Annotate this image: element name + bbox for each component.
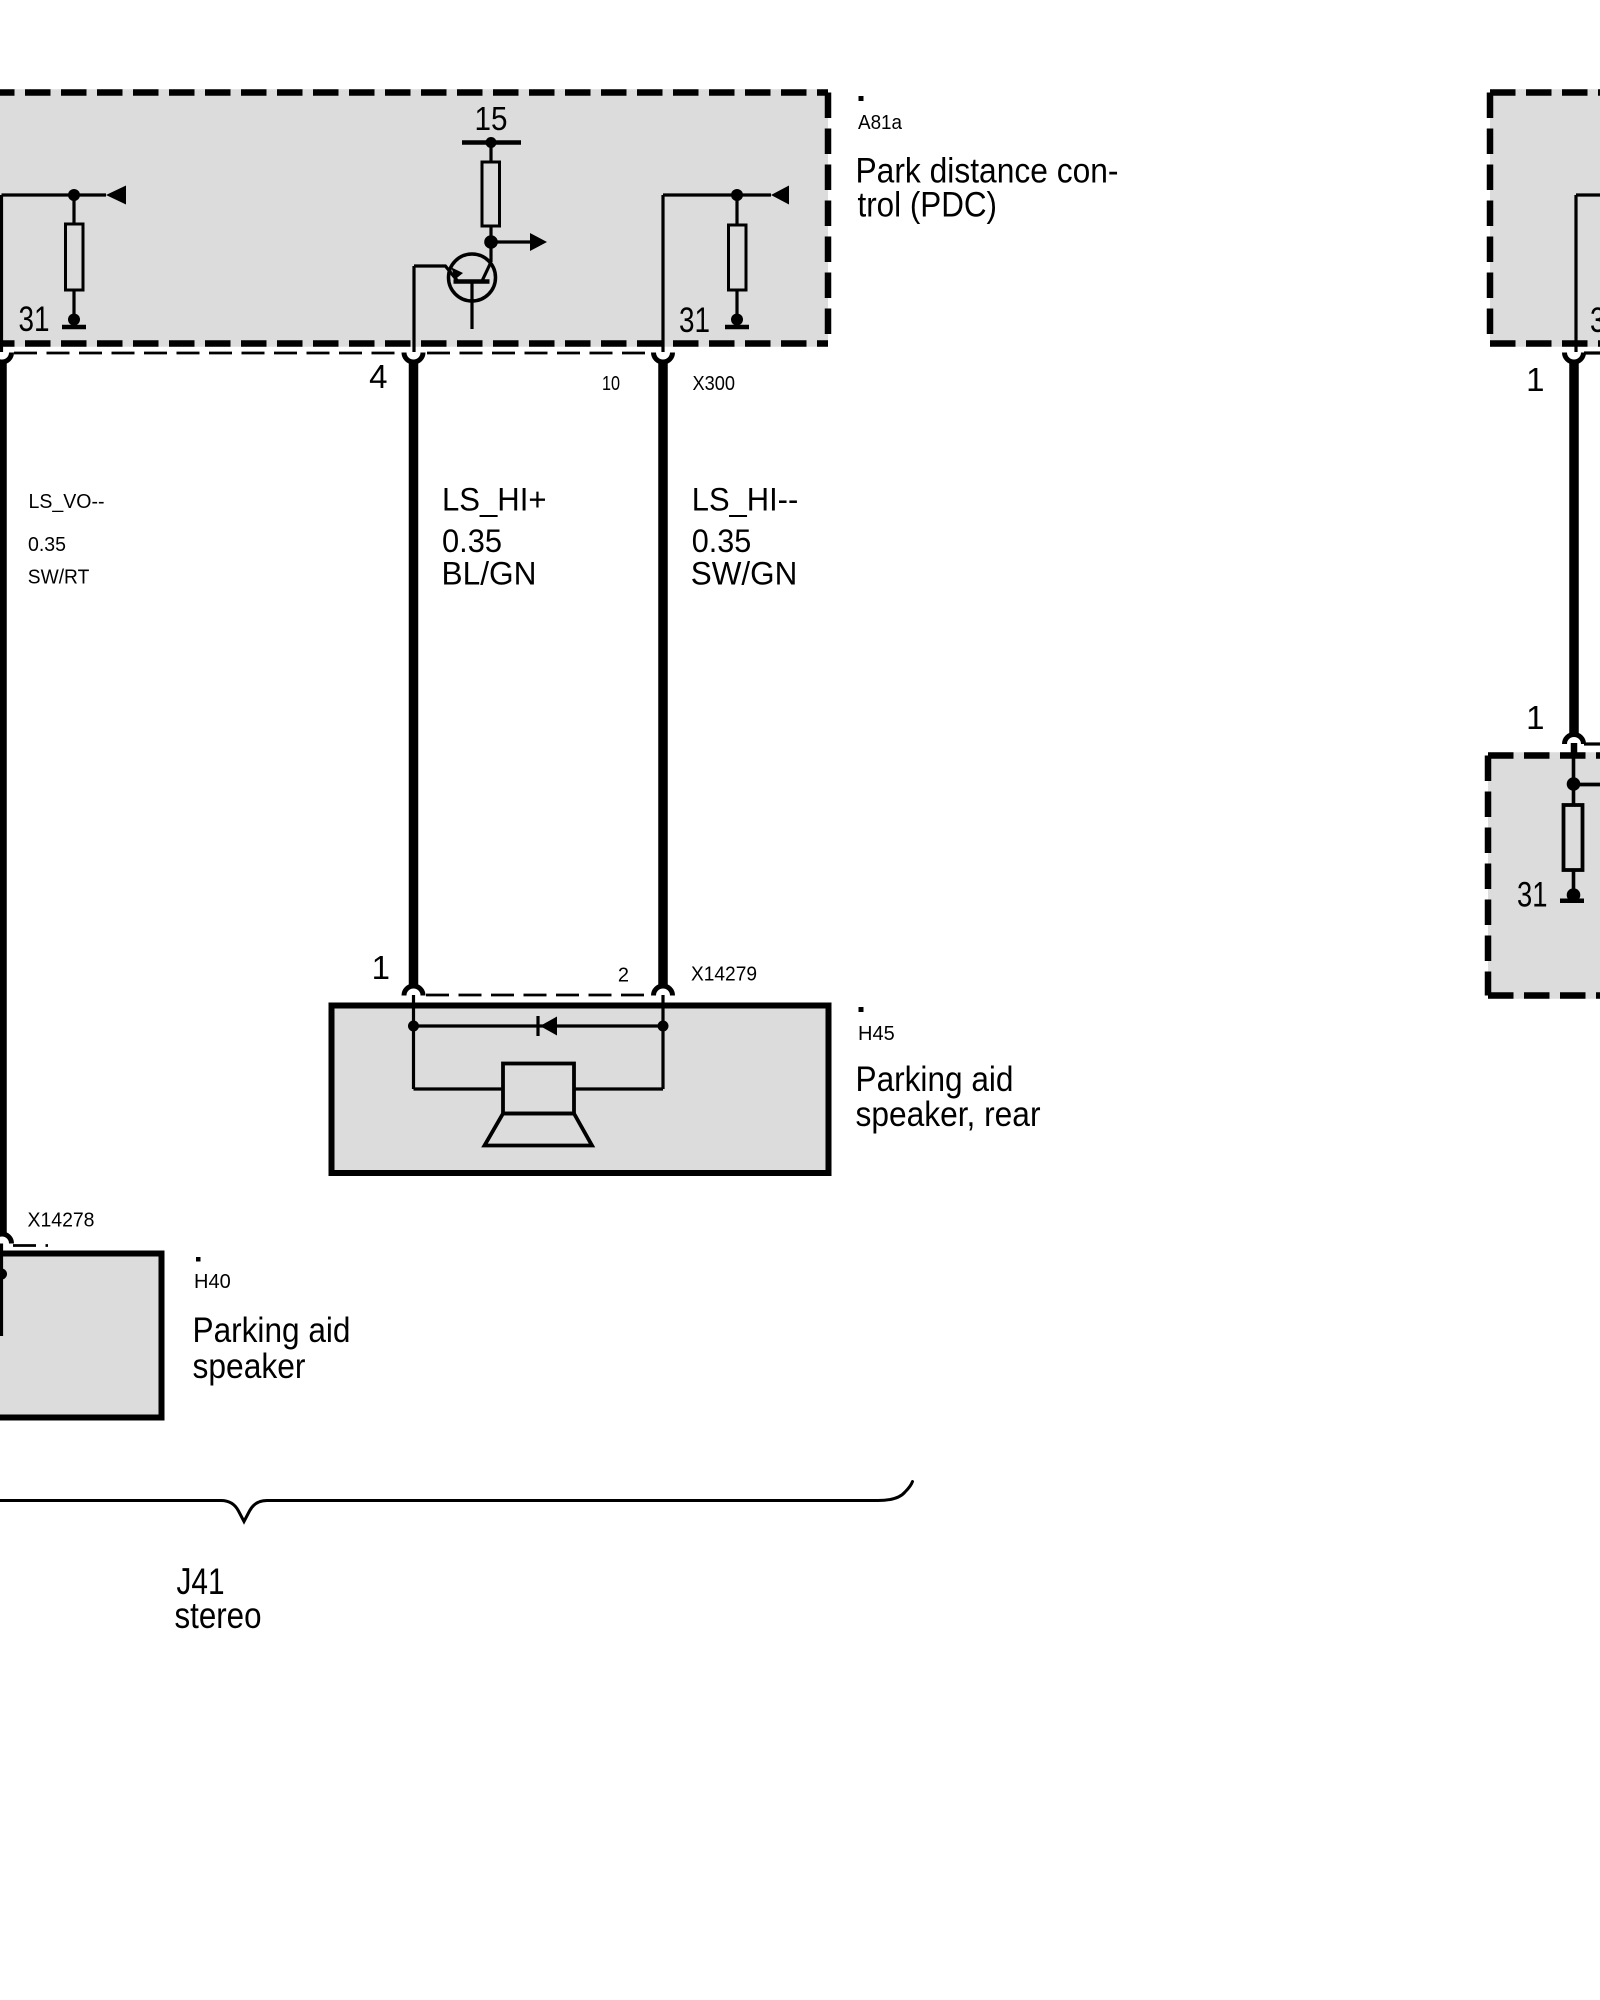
svg-text:1: 1 xyxy=(1526,699,1544,736)
svg-text:1: 1 xyxy=(372,949,390,986)
svg-text:2: 2 xyxy=(618,965,629,987)
svg-text:X14279: X14279 xyxy=(691,964,757,986)
svg-text:BL/GN: BL/GN xyxy=(442,556,537,592)
svg-text:H40: H40 xyxy=(194,1271,231,1293)
svg-text:31: 31 xyxy=(19,300,50,339)
svg-text:LS_HI+: LS_HI+ xyxy=(442,482,547,518)
svg-text:4: 4 xyxy=(369,358,387,395)
svg-text:trol (PDC): trol (PDC) xyxy=(858,186,998,225)
svg-text:31: 31 xyxy=(1517,876,1548,915)
svg-text:0.35: 0.35 xyxy=(442,523,502,559)
svg-text:Parking aid: Parking aid xyxy=(856,1060,1014,1099)
svg-text:0.35: 0.35 xyxy=(692,523,752,559)
svg-text:SW/GN: SW/GN xyxy=(691,556,798,592)
svg-text:31: 31 xyxy=(1590,301,1600,340)
svg-text:H45: H45 xyxy=(858,1023,895,1045)
svg-text:X14278: X14278 xyxy=(28,1210,95,1232)
svg-text:X300: X300 xyxy=(693,373,736,395)
svg-text:15: 15 xyxy=(475,100,508,137)
svg-text:SW/RT: SW/RT xyxy=(28,567,90,589)
svg-text:speaker: speaker xyxy=(193,1347,306,1386)
svg-text:1: 1 xyxy=(1526,361,1544,398)
svg-text:LS_HI--: LS_HI-- xyxy=(692,482,799,518)
svg-text:A81a: A81a xyxy=(858,112,903,134)
svg-text:Parking aid: Parking aid xyxy=(193,1311,351,1350)
svg-text:speaker, rear: speaker, rear xyxy=(856,1095,1041,1134)
svg-text:0.35: 0.35 xyxy=(28,534,66,556)
svg-text:10: 10 xyxy=(602,373,620,395)
svg-text:31: 31 xyxy=(679,301,710,340)
svg-text:stereo: stereo xyxy=(175,1595,262,1636)
svg-text:LS_VO--: LS_VO-- xyxy=(29,491,105,513)
